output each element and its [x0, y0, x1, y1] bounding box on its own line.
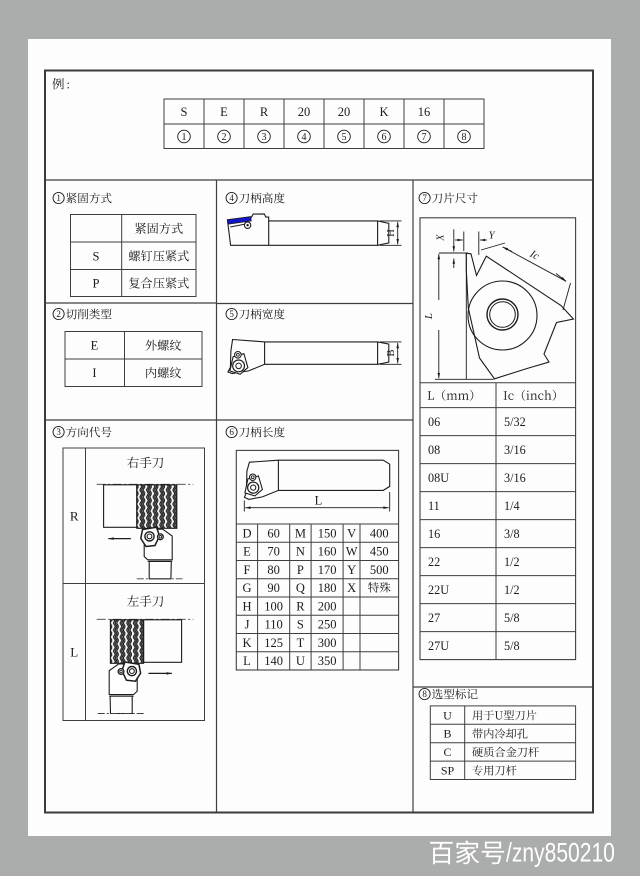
svg-text:P: P: [297, 563, 304, 577]
svg-text:3/16: 3/16: [504, 443, 526, 457]
svg-text:90: 90: [267, 581, 280, 595]
svg-text:7: 7: [422, 193, 427, 203]
svg-text:450: 450: [370, 545, 389, 559]
svg-text:16: 16: [418, 105, 431, 119]
svg-text:U: U: [296, 654, 305, 668]
svg-text:E: E: [220, 105, 228, 119]
svg-text:2: 2: [222, 132, 227, 143]
svg-text:110: 110: [264, 618, 282, 632]
svg-text:J: J: [245, 618, 250, 632]
svg-text:20: 20: [338, 105, 351, 119]
svg-text:1/2: 1/2: [504, 555, 520, 569]
svg-text:E: E: [243, 545, 251, 559]
svg-text:5/8: 5/8: [504, 639, 520, 653]
svg-text:Q: Q: [296, 581, 305, 595]
svg-text:5/32: 5/32: [504, 415, 526, 429]
svg-text:170: 170: [318, 563, 337, 577]
svg-text:100: 100: [264, 599, 283, 613]
svg-text:S: S: [297, 618, 304, 632]
svg-text:8: 8: [462, 132, 467, 143]
svg-text:L: L: [70, 645, 78, 660]
svg-text:150: 150: [318, 526, 337, 540]
svg-text:L: L: [243, 654, 251, 668]
svg-text:27U: 27U: [428, 639, 449, 653]
svg-text:S: S: [93, 249, 100, 263]
svg-text:R: R: [296, 599, 305, 613]
svg-text:G: G: [242, 581, 251, 595]
svg-text:S: S: [181, 105, 188, 119]
svg-text:X: X: [436, 234, 447, 242]
svg-text:E: E: [91, 339, 99, 353]
svg-text:K: K: [242, 636, 251, 650]
svg-text:V: V: [347, 526, 356, 540]
svg-text:SP: SP: [441, 764, 455, 778]
svg-text::: :: [67, 78, 70, 92]
svg-text:1: 1: [182, 132, 187, 143]
svg-text:3/8: 3/8: [504, 527, 520, 541]
svg-text:/zny850210: /zny850210: [506, 838, 615, 868]
svg-text:X: X: [347, 581, 356, 595]
svg-text:160: 160: [318, 545, 337, 559]
svg-text:08: 08: [428, 443, 440, 457]
svg-text:70: 70: [267, 545, 280, 559]
svg-text:I: I: [92, 366, 96, 380]
svg-text:6: 6: [382, 132, 387, 143]
svg-text:F: F: [244, 563, 251, 577]
svg-text:B: B: [386, 349, 397, 356]
svg-text:U: U: [443, 708, 452, 722]
svg-text:300: 300: [318, 636, 337, 650]
svg-text:22U: 22U: [428, 583, 449, 597]
svg-text:1/2: 1/2: [504, 583, 520, 597]
svg-text:5: 5: [342, 132, 347, 143]
svg-text:2: 2: [56, 309, 61, 319]
svg-text:8: 8: [422, 689, 427, 699]
svg-text:R: R: [260, 105, 269, 119]
svg-text:400: 400: [370, 526, 389, 540]
svg-text:20: 20: [298, 105, 311, 119]
svg-text:80: 80: [267, 563, 280, 577]
svg-text:06: 06: [428, 415, 440, 429]
svg-text:22: 22: [428, 555, 440, 569]
svg-text:125: 125: [264, 636, 283, 650]
svg-text:27: 27: [428, 611, 440, 625]
svg-text:Y: Y: [347, 563, 356, 577]
svg-text:5/8: 5/8: [504, 611, 520, 625]
svg-text:200: 200: [318, 599, 337, 613]
svg-text:H: H: [242, 599, 251, 613]
svg-text:4: 4: [302, 132, 307, 143]
svg-text:T: T: [297, 636, 305, 650]
svg-text:3: 3: [56, 427, 61, 437]
svg-text:350: 350: [318, 654, 337, 668]
svg-text:L: L: [315, 494, 323, 508]
svg-text:1: 1: [56, 193, 61, 203]
svg-text:1/4: 1/4: [504, 499, 520, 513]
svg-text:N: N: [296, 545, 305, 559]
svg-text:4: 4: [229, 193, 234, 203]
svg-text:D: D: [242, 526, 251, 540]
svg-text:180: 180: [318, 581, 337, 595]
svg-text:R: R: [70, 509, 79, 524]
svg-text:7: 7: [422, 132, 427, 143]
svg-text:M: M: [295, 526, 306, 540]
svg-text:5: 5: [229, 309, 234, 319]
svg-text:3/16: 3/16: [504, 471, 526, 485]
svg-text:H: H: [386, 229, 397, 237]
svg-text:W: W: [346, 545, 358, 559]
svg-text:140: 140: [264, 654, 283, 668]
svg-text:L: L: [423, 313, 435, 320]
svg-text:16: 16: [428, 527, 440, 541]
svg-text:B: B: [443, 727, 451, 741]
svg-text:08U: 08U: [428, 471, 449, 485]
svg-text:C: C: [443, 745, 451, 759]
svg-text:60: 60: [267, 526, 280, 540]
svg-text:6: 6: [229, 427, 234, 437]
svg-text:500: 500: [370, 563, 389, 577]
svg-text:250: 250: [318, 618, 337, 632]
svg-text:11: 11: [428, 499, 440, 513]
svg-text:K: K: [379, 105, 388, 119]
svg-text:P: P: [93, 277, 100, 291]
svg-text:3: 3: [262, 132, 267, 143]
